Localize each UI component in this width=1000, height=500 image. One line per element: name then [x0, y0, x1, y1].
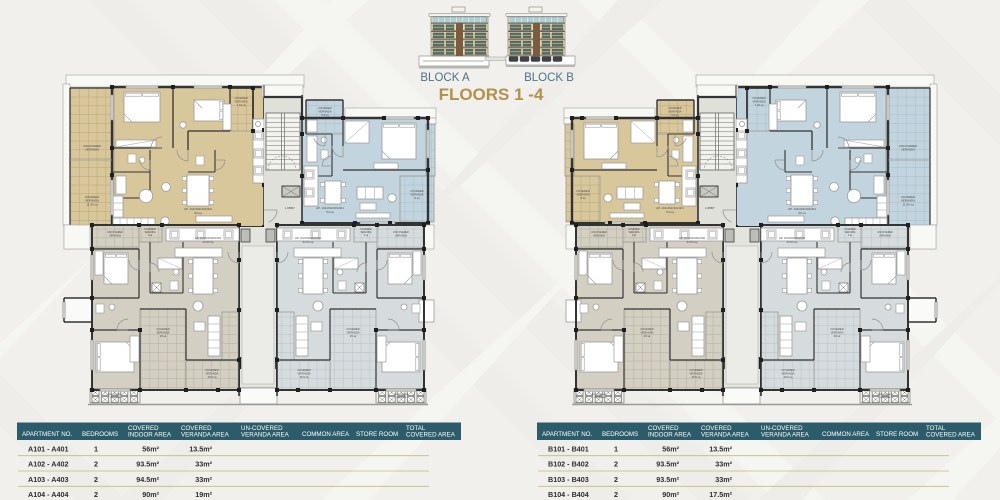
svg-text:33m²: 33m²	[195, 460, 212, 469]
svg-text:1: 1	[614, 444, 618, 453]
svg-text:INDOOR AREA: INDOOR AREA	[648, 432, 692, 439]
svg-text:2: 2	[614, 490, 618, 499]
svg-text:VERANDA AREA: VERANDA AREA	[241, 432, 290, 439]
svg-text:A104 - A404: A104 - A404	[28, 490, 69, 499]
svg-text:VERANDA: VERANDA	[206, 372, 219, 376]
svg-text:VERANDA: VERANDA	[753, 100, 766, 104]
svg-text:COVERED: COVERED	[668, 106, 681, 110]
svg-text:APARTMENT NO.: APARTMENT NO.	[22, 431, 72, 438]
svg-text:29.5 sq: 29.5 sq	[692, 375, 701, 379]
svg-text:APARTMENT NO.: APARTMENT NO.	[542, 431, 592, 438]
svg-text:29 sq: 29 sq	[160, 334, 167, 338]
svg-text:1: 1	[94, 444, 98, 453]
svg-text:COVERED: COVERED	[346, 327, 359, 331]
svg-text:29 sq: 29 sq	[644, 334, 651, 338]
svg-text:56m²: 56m²	[142, 444, 159, 453]
svg-text:VERANDA: VERANDA	[880, 396, 891, 399]
svg-text:B103 - B403: B103 - B403	[548, 475, 589, 484]
svg-text:VERANDA: VERANDA	[109, 234, 121, 237]
svg-text:7.34 sq: 7.34 sq	[755, 103, 764, 107]
svg-text:11.50 sq: 11.50 sq	[87, 202, 98, 206]
svg-text:VERANDA: VERANDA	[110, 396, 121, 399]
svg-text:90m²: 90m²	[662, 490, 679, 499]
svg-text:19m²: 19m²	[195, 490, 212, 499]
svg-text:BLOCK A: BLOCK A	[420, 72, 470, 84]
svg-text:A101 - A401: A101 - A401	[28, 444, 69, 453]
svg-text:VERANDA: VERANDA	[628, 231, 640, 234]
svg-text:VERANDA: VERANDA	[360, 231, 372, 234]
svg-text:COVERED: COVERED	[297, 368, 310, 372]
svg-text:COVERED: COVERED	[360, 229, 372, 231]
svg-text:54 sq: 54 sq	[326, 210, 334, 214]
svg-text:LOBBY: LOBBY	[285, 206, 295, 210]
svg-text:COVERED AREA: COVERED AREA	[926, 432, 976, 439]
svg-text:FLOORS 1 -4: FLOORS 1 -4	[439, 85, 544, 104]
svg-text:5.5 sq: 5.5 sq	[671, 113, 679, 117]
svg-text:2: 2	[614, 475, 618, 484]
svg-text:VERANDA: VERANDA	[157, 331, 170, 335]
svg-text:4 sq: 4 sq	[148, 235, 153, 237]
svg-text:VERANDA: VERANDA	[396, 396, 407, 399]
svg-text:INDOOR AREA: INDOOR AREA	[128, 432, 172, 439]
svg-text:94.50 sq: 94.50 sq	[787, 240, 798, 244]
svg-text:VERANDA: VERANDA	[669, 110, 682, 114]
svg-text:STORE ROOM: STORE ROOM	[356, 431, 398, 438]
svg-text:COMMON AREA: COMMON AREA	[822, 431, 870, 438]
svg-text:VERANDA: VERANDA	[577, 193, 590, 197]
svg-text:54 sq: 54 sq	[666, 210, 674, 214]
svg-text:UNCOVERED: UNCOVERED	[108, 394, 122, 396]
svg-text:93.50 sq: 93.50 sq	[303, 240, 314, 244]
svg-text:A103 - A403: A103 - A403	[28, 475, 69, 484]
svg-text:33m²: 33m²	[195, 475, 212, 484]
svg-text:VERANDA AREA: VERANDA AREA	[181, 432, 230, 439]
svg-text:2: 2	[94, 490, 98, 499]
svg-text:COVERED: COVERED	[781, 368, 794, 372]
svg-text:B101 - B401: B101 - B401	[548, 444, 589, 453]
svg-text:90 sq: 90 sq	[194, 211, 202, 215]
svg-text:BEDROOMS: BEDROOMS	[602, 431, 638, 438]
svg-text:COVERED: COVERED	[640, 327, 653, 331]
svg-text:VERANDA AREA: VERANDA AREA	[761, 432, 810, 439]
svg-text:90 sq: 90 sq	[798, 211, 806, 215]
svg-text:VERANDA: VERANDA	[690, 372, 703, 376]
svg-text:4 sq: 4 sq	[632, 235, 637, 237]
svg-text:11.50 sq: 11.50 sq	[903, 202, 914, 206]
svg-text:33m²: 33m²	[715, 475, 732, 484]
svg-text:29.5 sq: 29.5 sq	[208, 375, 217, 379]
svg-text:VERANDA: VERANDA	[319, 110, 332, 114]
svg-text:VERANDA: VERANDA	[901, 148, 915, 152]
svg-text:4 sq: 4 sq	[848, 235, 853, 237]
svg-text:93.5m²: 93.5m²	[656, 475, 679, 484]
svg-text:B104 - B404: B104 - B404	[548, 490, 589, 499]
svg-text:UNCOVERED: UNCOVERED	[394, 394, 408, 396]
svg-text:94.50 sq: 94.50 sq	[203, 240, 214, 244]
svg-text:VERANDA: VERANDA	[235, 100, 248, 104]
svg-text:5.5 sq: 5.5 sq	[321, 113, 329, 117]
svg-text:COVERED AREA: COVERED AREA	[406, 432, 456, 439]
svg-text:VERANDA: VERANDA	[879, 234, 891, 237]
svg-text:13.5m²: 13.5m²	[189, 444, 212, 453]
svg-text:29.5 sq: 29.5 sq	[300, 375, 309, 379]
svg-text:COVERED: COVERED	[205, 368, 218, 372]
svg-text:UNCOVERED: UNCOVERED	[878, 394, 892, 396]
svg-text:BLOCK B: BLOCK B	[524, 72, 574, 84]
svg-text:VERANDA: VERANDA	[831, 331, 844, 335]
svg-text:VERANDA: VERANDA	[144, 231, 156, 234]
svg-text:VERANDA: VERANDA	[844, 231, 856, 234]
svg-text:4 sq: 4 sq	[364, 235, 369, 237]
svg-text:VERANDA AREA: VERANDA AREA	[701, 432, 750, 439]
svg-text:COVERED: COVERED	[318, 106, 331, 110]
svg-text:VERANDA: VERANDA	[347, 331, 360, 335]
svg-text:93.5m²: 93.5m²	[656, 460, 679, 469]
svg-text:COVERED: COVERED	[830, 327, 843, 331]
svg-text:2: 2	[614, 460, 618, 469]
svg-text:29 sq: 29 sq	[834, 334, 841, 338]
svg-text:2: 2	[94, 475, 98, 484]
svg-text:56m²: 56m²	[662, 444, 679, 453]
svg-text:COVERED: COVERED	[689, 368, 702, 372]
svg-text:13.5m²: 13.5m²	[709, 444, 732, 453]
svg-text:A102 - A402: A102 - A402	[28, 460, 69, 469]
svg-text:COVERED: COVERED	[844, 229, 856, 231]
svg-text:VERANDA: VERANDA	[782, 372, 795, 376]
svg-text:VERANDA: VERANDA	[641, 331, 654, 335]
svg-text:B102 - B402: B102 - B402	[548, 460, 589, 469]
svg-text:COVERED: COVERED	[410, 189, 423, 193]
svg-text:COVERED: COVERED	[752, 96, 765, 100]
svg-text:COMMON AREA: COMMON AREA	[302, 431, 350, 438]
svg-text:VERANDA: VERANDA	[298, 372, 311, 376]
svg-text:VERANDA: VERANDA	[594, 396, 605, 399]
svg-text:COVERED: COVERED	[628, 229, 640, 231]
svg-text:COVERED: COVERED	[156, 327, 169, 331]
svg-text:90m²: 90m²	[142, 490, 159, 499]
svg-text:8 sq: 8 sq	[580, 196, 586, 200]
svg-text:8 sq: 8 sq	[414, 196, 420, 200]
svg-text:UNCOVERED: UNCOVERED	[592, 394, 606, 396]
svg-text:29.5 sq: 29.5 sq	[784, 375, 793, 379]
svg-text:COVERED: COVERED	[144, 229, 156, 231]
svg-text:29 sq: 29 sq	[350, 334, 357, 338]
svg-text:COVERED: COVERED	[576, 189, 589, 193]
svg-text:STORE ROOM: STORE ROOM	[876, 431, 918, 438]
svg-text:93.50 sq: 93.50 sq	[687, 240, 698, 244]
svg-text:17.5m²: 17.5m²	[709, 490, 732, 499]
svg-text:2: 2	[94, 460, 98, 469]
svg-text:93.5m²: 93.5m²	[136, 460, 159, 469]
svg-text:VERANDA: VERANDA	[85, 148, 99, 152]
svg-text:BEDROOMS: BEDROOMS	[82, 431, 118, 438]
svg-text:VERANDA: VERANDA	[593, 234, 605, 237]
svg-text:7.34 sq: 7.34 sq	[237, 103, 246, 107]
svg-text:LOBBY: LOBBY	[705, 206, 715, 210]
svg-text:VERANDA: VERANDA	[395, 234, 407, 237]
svg-text:94.5m²: 94.5m²	[136, 475, 159, 484]
svg-text:VERANDA: VERANDA	[411, 193, 424, 197]
svg-text:COVERED: COVERED	[234, 96, 247, 100]
svg-text:33m²: 33m²	[715, 460, 732, 469]
